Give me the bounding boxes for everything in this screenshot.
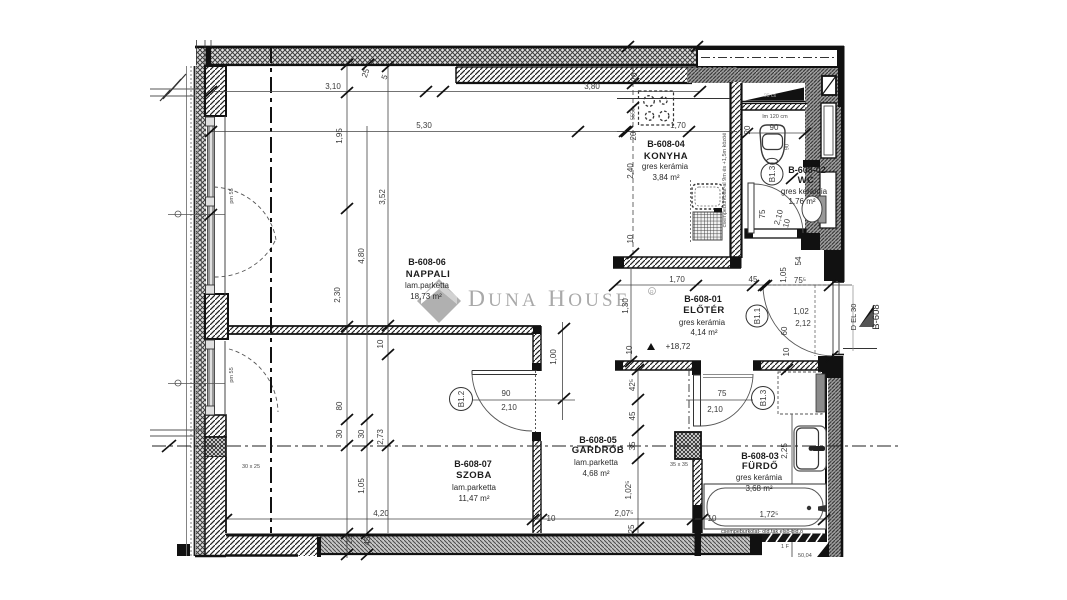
- svg-text:B-608-01: B-608-01: [684, 294, 722, 304]
- svg-text:10: 10: [626, 234, 635, 243]
- svg-text:30: 30: [335, 429, 344, 438]
- svg-text:42⁵: 42⁵: [628, 379, 637, 391]
- svg-text:1,00: 1,00: [549, 349, 558, 365]
- svg-text:B-608-06: B-608-06: [408, 257, 446, 267]
- svg-text:2,10: 2,10: [501, 403, 517, 412]
- svg-text:75: 75: [718, 389, 727, 398]
- svg-text:gres kerámia: gres kerámia: [781, 187, 828, 196]
- svg-text:75: 75: [758, 209, 767, 218]
- svg-text:B1.1: B1.1: [753, 307, 762, 324]
- svg-text:11,47 m²: 11,47 m²: [459, 494, 490, 503]
- svg-text:2,07⁵: 2,07⁵: [615, 509, 634, 518]
- svg-text:4,80: 4,80: [357, 248, 366, 264]
- svg-text:30: 30: [357, 429, 366, 438]
- svg-text:WC: WC: [798, 175, 815, 186]
- svg-text:25: 25: [345, 535, 354, 544]
- svg-text:NAPPALI: NAPPALI: [406, 269, 451, 280]
- svg-text:2,73: 2,73: [376, 429, 385, 445]
- svg-text:gres kerámia: gres kerámia: [736, 473, 783, 482]
- svg-text:3,52: 3,52: [378, 189, 387, 205]
- svg-text:45: 45: [749, 275, 758, 284]
- svg-text:DUNA HOUSE: DUNA HOUSE: [468, 286, 631, 312]
- svg-text:GARDRÓB: GARDRÓB: [572, 444, 625, 456]
- svg-text:D EL 30: D EL 30: [849, 304, 858, 331]
- svg-text:75⁵: 75⁵: [794, 276, 806, 285]
- svg-text:csempeburkolat-al 9m és +1,5m: csempeburkolat-al 9m és +1,5m közöé: [722, 133, 728, 228]
- svg-text:1,70: 1,70: [669, 275, 685, 284]
- svg-text:18,73 m²: 18,73 m²: [410, 292, 442, 301]
- svg-text:gres kerámia: gres kerámia: [679, 318, 726, 327]
- svg-text:10: 10: [625, 345, 634, 354]
- svg-text:2,25: 2,25: [780, 443, 789, 459]
- svg-text:1,76 m²: 1,76 m²: [788, 197, 815, 206]
- svg-text:45: 45: [363, 536, 372, 545]
- svg-text:54: 54: [794, 256, 803, 265]
- svg-text:csempeburkolat- old.tak első-o: csempeburkolat- old.tak első-old.ó: [721, 529, 803, 535]
- svg-text:FÜRDŐ: FÜRDŐ: [742, 460, 778, 472]
- svg-text:4,68 m²: 4,68 m²: [582, 469, 609, 478]
- svg-text:20: 20: [743, 125, 752, 134]
- svg-text:3,10: 3,10: [325, 82, 341, 91]
- svg-text:SZOBA: SZOBA: [456, 470, 492, 481]
- svg-text:2,40: 2,40: [626, 163, 635, 179]
- svg-text:25: 25: [627, 524, 636, 533]
- svg-text:3,80: 3,80: [584, 82, 600, 91]
- svg-text:1,95: 1,95: [335, 128, 344, 144]
- svg-text:+18,72: +18,72: [666, 342, 691, 351]
- svg-text:50,04: 50,04: [798, 553, 812, 559]
- svg-text:gres kerámia: gres kerámia: [642, 162, 689, 171]
- svg-text:ELŐTÉR: ELŐTÉR: [683, 304, 725, 316]
- svg-text:B1.2: B1.2: [457, 390, 466, 407]
- svg-text:pm 55: pm 55: [229, 188, 235, 203]
- svg-text:lm 120 cm: lm 120 cm: [762, 114, 788, 120]
- svg-text:1,70: 1,70: [670, 121, 686, 130]
- svg-text:B-608-02: B-608-02: [788, 165, 826, 175]
- svg-text:2,30: 2,30: [333, 287, 342, 303]
- svg-text:10: 10: [376, 339, 385, 348]
- svg-text:35 x 35: 35 x 35: [670, 462, 688, 468]
- svg-text:B-608-03: B-608-03: [741, 451, 779, 461]
- svg-text:B1.3: B1.3: [759, 389, 768, 406]
- svg-text:45: 45: [628, 411, 637, 420]
- svg-text:lam.parketta: lam.parketta: [405, 281, 450, 290]
- svg-text:2,12: 2,12: [795, 319, 811, 328]
- svg-text:90: 90: [785, 144, 791, 150]
- svg-text:B-608: B-608: [871, 304, 882, 329]
- svg-text:1,72⁵: 1,72⁵: [760, 510, 779, 519]
- svg-text:90 cs: 90 cs: [764, 93, 776, 99]
- svg-text:B-608-07: B-608-07: [454, 459, 492, 469]
- svg-text:1 F: 1 F: [781, 544, 790, 550]
- svg-text:1,02: 1,02: [793, 307, 809, 316]
- svg-text:4,14 m²: 4,14 m²: [690, 328, 717, 337]
- svg-text:10: 10: [708, 514, 717, 523]
- svg-text:35: 35: [628, 441, 637, 450]
- svg-text:R: R: [650, 290, 654, 296]
- svg-text:10: 10: [782, 347, 791, 356]
- svg-text:3,68 m²: 3,68 m²: [745, 484, 772, 493]
- svg-text:1,30: 1,30: [621, 298, 630, 314]
- svg-text:lam.parketta: lam.parketta: [574, 458, 619, 467]
- svg-text:B1.3: B1.3: [768, 165, 777, 182]
- svg-text:1,05: 1,05: [357, 478, 366, 494]
- svg-text:5555: 5555: [631, 108, 637, 120]
- svg-text:90: 90: [502, 389, 511, 398]
- svg-text:3,84 m²: 3,84 m²: [652, 173, 679, 182]
- svg-text:pm 55: pm 55: [229, 367, 235, 382]
- svg-text:KONYHA: KONYHA: [644, 151, 688, 162]
- svg-text:1,02⁵: 1,02⁵: [624, 481, 633, 500]
- svg-text:2,10: 2,10: [707, 405, 723, 414]
- svg-text:lam.parketta: lam.parketta: [452, 483, 497, 492]
- svg-text:20: 20: [629, 131, 638, 140]
- svg-text:5,30: 5,30: [416, 121, 432, 130]
- svg-text:80: 80: [335, 401, 344, 410]
- svg-text:20: 20: [630, 72, 639, 81]
- svg-text:4,20: 4,20: [373, 509, 389, 518]
- svg-text:10: 10: [547, 514, 556, 523]
- svg-text:30 x 25: 30 x 25: [242, 464, 260, 470]
- svg-text:60: 60: [780, 326, 789, 335]
- svg-text:90: 90: [770, 123, 779, 132]
- svg-text:B-608-05: B-608-05: [579, 435, 617, 445]
- svg-text:B-608-04: B-608-04: [647, 139, 685, 149]
- svg-text:1,05: 1,05: [779, 267, 788, 283]
